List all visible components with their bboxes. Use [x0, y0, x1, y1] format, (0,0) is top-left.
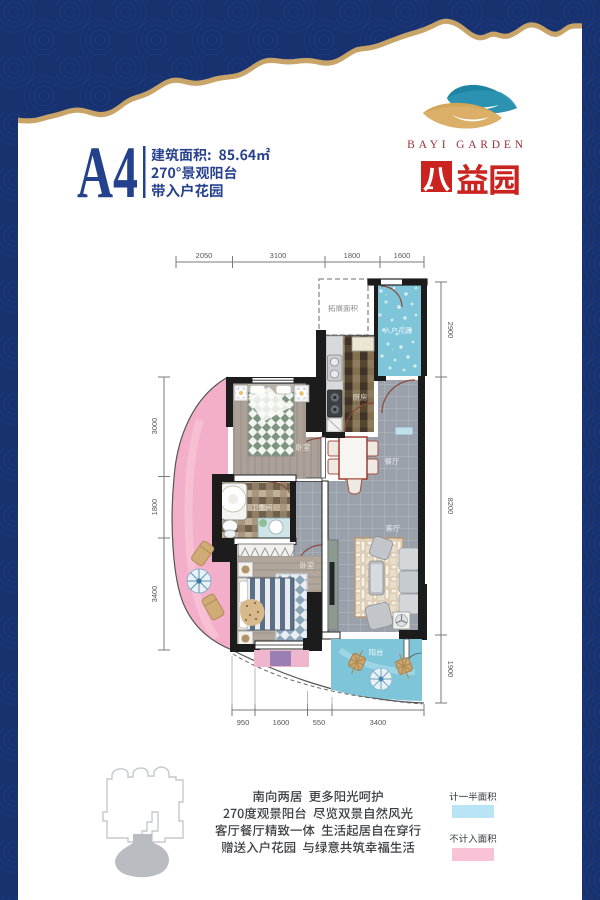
- svg-text:550: 550: [313, 718, 326, 727]
- svg-text:950: 950: [237, 718, 250, 727]
- svg-text:1900: 1900: [446, 661, 455, 678]
- svg-text:3100: 3100: [270, 251, 287, 260]
- svg-text:1800: 1800: [344, 251, 361, 260]
- svg-text:3000: 3000: [150, 418, 159, 435]
- svg-text:1600: 1600: [273, 718, 290, 727]
- svg-text:8200: 8200: [446, 498, 455, 515]
- svg-text:2050: 2050: [196, 251, 213, 260]
- svg-text:1600: 1600: [394, 251, 411, 260]
- svg-text:3400: 3400: [150, 586, 159, 603]
- svg-text:A4: A4: [77, 132, 138, 214]
- svg-text:BAYI GARDEN: BAYI GARDEN: [407, 139, 527, 151]
- svg-text:1800: 1800: [150, 499, 159, 516]
- svg-text:2900: 2900: [446, 322, 455, 339]
- svg-text:3400: 3400: [370, 718, 387, 727]
